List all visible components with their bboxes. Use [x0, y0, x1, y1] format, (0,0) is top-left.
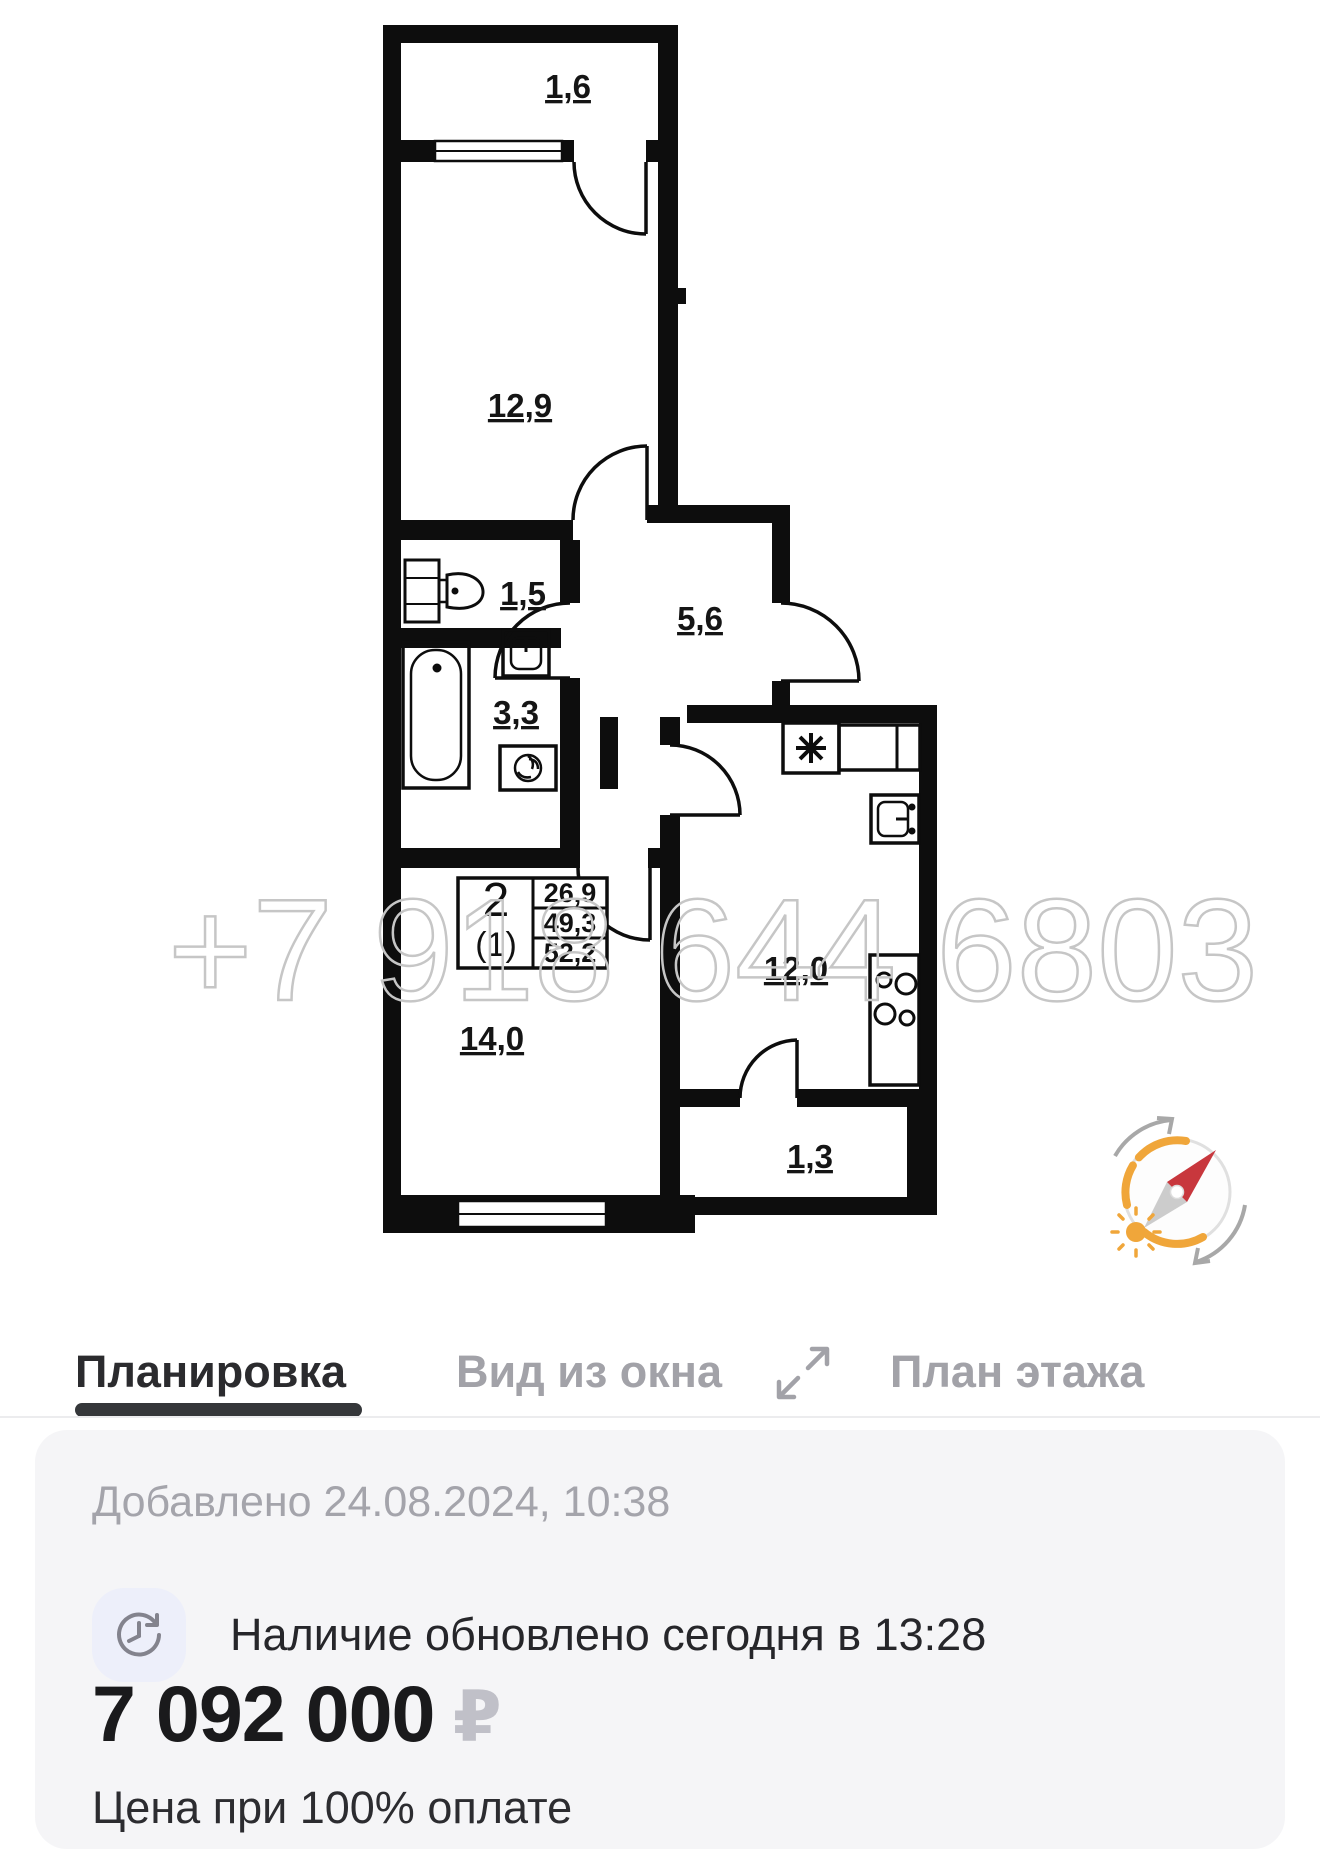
- compass-icon: [1112, 1118, 1245, 1263]
- kitchen-sink-icon: [871, 795, 919, 843]
- room-label-hallway: 5,6: [677, 600, 723, 637]
- washing-machine-icon: [500, 746, 556, 790]
- currency-symbol: ₽: [453, 1676, 502, 1758]
- price-amount: 7 092 000: [92, 1669, 434, 1758]
- date-added-label: Добавлено 24.08.2024, 10:38: [92, 1478, 670, 1527]
- room-label-room-12-9: 12,9: [488, 387, 552, 424]
- floorplan-image[interactable]: 2 (1) 26,9 49,3 52,2 1,6 12,9 1,5 5,6 3,…: [0, 0, 1320, 1300]
- toilet-icon: [405, 560, 483, 622]
- room-label-wc: 1,5: [500, 575, 546, 612]
- kitchen-counter: [839, 725, 920, 770]
- tab-window-view[interactable]: Вид из окна: [456, 1346, 722, 1398]
- room-label-loggia-top: 1,6: [545, 68, 591, 105]
- expand-icon[interactable]: [770, 1340, 836, 1406]
- active-tab-indicator: [75, 1403, 362, 1417]
- room-label-bathroom: 3,3: [493, 694, 539, 731]
- tab-layout[interactable]: Планировка: [75, 1346, 346, 1398]
- availability-text: Наличие обновлено сегодня в 13:28: [230, 1609, 986, 1661]
- sun-icon: [1112, 1208, 1160, 1256]
- room-label-loggia-bottom: 1,3: [787, 1138, 833, 1175]
- price-note: Цена при 100% оплате: [92, 1782, 572, 1834]
- kitchen-vent-icon: [783, 723, 839, 773]
- price: 7 092 000 ₽: [92, 1668, 502, 1760]
- tab-floor-plan[interactable]: План этажа: [890, 1346, 1144, 1398]
- bathtub-icon: [403, 642, 469, 788]
- divider: [0, 1416, 1320, 1418]
- listing-page: 2 (1) 26,9 49,3 52,2 1,6 12,9 1,5 5,6 3,…: [0, 0, 1320, 1849]
- listing-details-card: Добавлено 24.08.2024, 10:38 Наличие обно…: [35, 1430, 1285, 1849]
- floorplan-svg: 2 (1) 26,9 49,3 52,2 1,6 12,9 1,5 5,6 3,…: [0, 0, 1320, 1300]
- watermark-phone: +7 918 644 6803: [168, 869, 1258, 1031]
- clock-refresh-icon: [113, 1609, 165, 1661]
